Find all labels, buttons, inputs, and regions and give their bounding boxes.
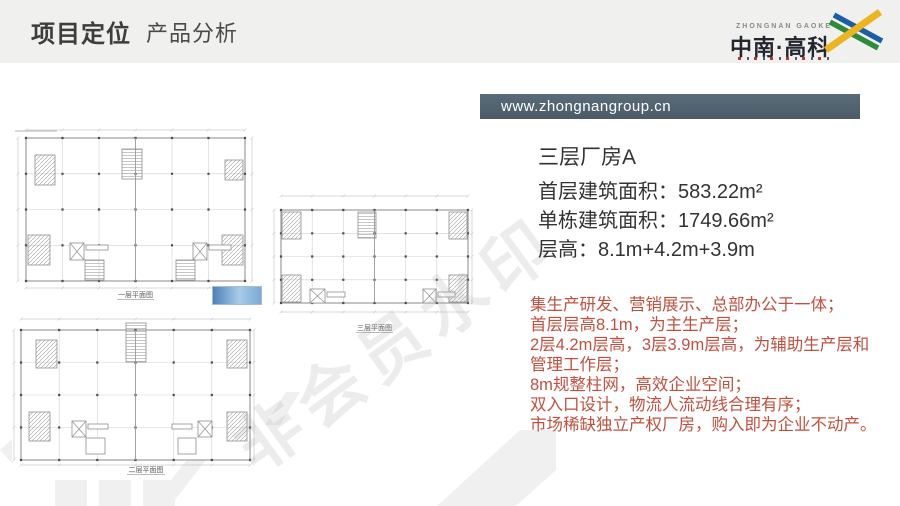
spec-floor-area: 首层建筑面积：583.22m² bbox=[538, 178, 774, 207]
title-primary: 项目定位 bbox=[31, 14, 131, 49]
title-secondary: 产品分析 bbox=[146, 16, 238, 48]
feature-line: 管理工作层； bbox=[530, 355, 877, 375]
plan-label: 一层平面图 bbox=[118, 291, 153, 299]
feature-line: 8m规整柱网，高效企业空间； bbox=[530, 375, 877, 395]
plan-label: 二层平面图 bbox=[129, 466, 164, 474]
feature-list: 集生产研发、营销展示、总部办公于一体； 首层层高8.1m，为主生产层； 2层4.… bbox=[530, 295, 877, 435]
logo-ribbon-icon bbox=[824, 8, 886, 58]
logo-tagline-dots bbox=[738, 57, 830, 60]
url-text: www.zhongnangroup.cn bbox=[480, 98, 671, 115]
product-info: 三层厂房A 首层建筑面积：583.22m² 单栋建筑面积：1749.66m² 层… bbox=[538, 141, 774, 265]
page-title: 项目定位 产品分析 bbox=[31, 0, 238, 63]
feature-line: 市场稀缺独立产权厂房，购入即为企业不动产。 bbox=[530, 415, 877, 435]
spec-building-area: 单栋建筑面积：1749.66m² bbox=[538, 207, 774, 236]
spec-floor-heights: 层高：8.1m+4.2m+3.9m bbox=[538, 236, 774, 265]
feature-line: 集生产研发、营销展示、总部办公于一体； bbox=[530, 295, 877, 315]
floor-plan-second-floor: 二层平面图 bbox=[10, 315, 258, 477]
feature-line: 2层4.2m层高，3层3.9m层高，为辅助生产层和 bbox=[530, 335, 877, 355]
product-title: 三层厂房A bbox=[538, 141, 774, 171]
feature-line: 首层层高8.1m，为主生产层； bbox=[530, 315, 877, 335]
floor-plan-first-floor: 一层平面图 bbox=[12, 124, 257, 302]
plan-label: 三层平面图 bbox=[357, 324, 392, 332]
logo-en-text: ZHONGNAN GAOKE bbox=[736, 23, 832, 30]
url-banner: www.zhongnangroup.cn bbox=[480, 94, 860, 119]
slide: 非会员水印 项目定位 产品分析 ZHONGNAN GAOKE 中南·高科 www… bbox=[0, 0, 900, 506]
feature-line: 双入口设计，物流人流动线合理有序； bbox=[530, 395, 877, 415]
company-logo: ZHONGNAN GAOKE 中南·高科 bbox=[726, 6, 886, 62]
highlight-bar bbox=[212, 286, 262, 305]
floor-plan-third-floor: 三层平面图 bbox=[270, 188, 475, 338]
